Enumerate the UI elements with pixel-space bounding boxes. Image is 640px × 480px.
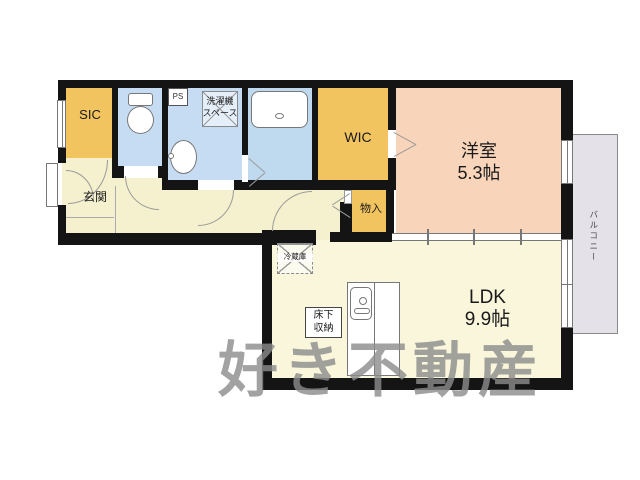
washer-space-label: 洗濯機 スペース: [196, 95, 244, 119]
window-mid-bar: [562, 284, 572, 285]
washer-space-label-line1: 洗濯機: [206, 96, 233, 106]
wall-hall-ldk: [262, 230, 316, 242]
watermark: 好き不動産: [218, 322, 598, 409]
bathtub-icon: [251, 91, 308, 128]
washroom-door-opening: [198, 180, 234, 190]
front-door-panel: [46, 163, 58, 207]
balcony-label: バルコニー: [588, 200, 598, 272]
toilet-icon: [127, 106, 154, 134]
underfloor-storage-label-line1: 床下: [314, 310, 334, 321]
sic-floor: [66, 88, 112, 158]
bathtub-drain-icon: [275, 113, 284, 119]
wic-label: WIC: [330, 129, 386, 145]
wall-wic-bedroom-lower: [388, 158, 396, 182]
window-pane-line: [567, 141, 568, 183]
wall-storage-left: [340, 202, 352, 236]
ldk-window: [561, 239, 573, 328]
entrance-side-window: [57, 100, 66, 148]
window-pane-line: [62, 101, 63, 147]
fridge-label: 冷蔵庫: [277, 253, 313, 262]
wall-storage-bottom: [330, 232, 392, 242]
genkan-label: 玄関: [70, 191, 120, 205]
sliding-door-tick: [427, 229, 429, 245]
kitchen-faucet-icon: [354, 308, 370, 314]
sliding-door-track: [392, 233, 561, 241]
wall-bath-wic: [312, 80, 318, 182]
entrance-step-line: [66, 217, 114, 218]
wall-wic-bottom: [312, 180, 396, 190]
bedroom-size: 5.3帖: [457, 163, 500, 183]
washbasin-tap-icon: [168, 153, 174, 159]
sliding-door-tick: [520, 229, 522, 245]
floor-plan: PS 洗濯機 スペース 冷蔵庫 床下 収納 SIC 玄関 WIC 物入 洋室 5…: [0, 0, 640, 480]
wall-sic-toilet: [112, 88, 118, 168]
sic-label: SIC: [70, 108, 110, 123]
wall-wic-bedroom-upper: [388, 80, 396, 130]
ps-label: PS: [168, 92, 188, 101]
kitchen-faucet-icon: [359, 297, 367, 305]
washbasin-icon: [170, 140, 197, 174]
ldk-name: LDK: [469, 287, 506, 308]
bedroom-name: 洋室: [461, 141, 497, 161]
bedroom-window: [561, 140, 573, 184]
storage-label: 物入: [354, 203, 388, 216]
toilet-icon: [128, 93, 153, 106]
bedroom-label: 洋室 5.3帖: [414, 140, 544, 184]
sliding-door-tick: [473, 229, 475, 245]
washer-space-label-line2: スペース: [203, 108, 238, 118]
